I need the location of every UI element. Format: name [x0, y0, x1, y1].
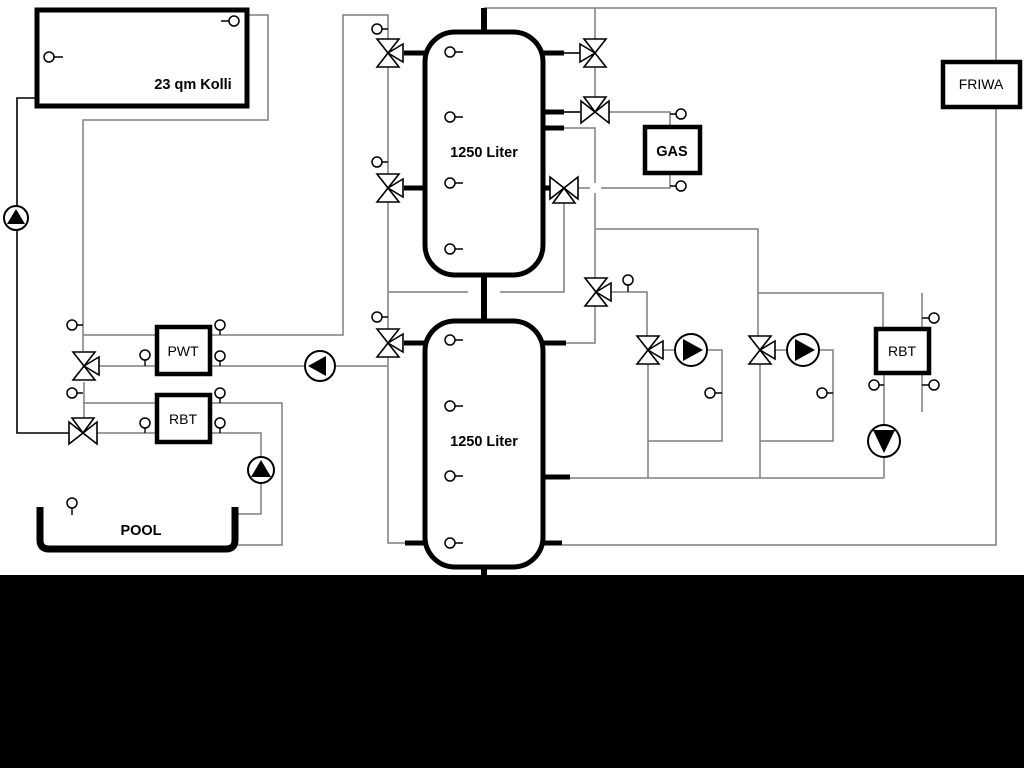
pump-icon-pool: [248, 457, 274, 483]
temperature-sensor-icon: [215, 351, 225, 361]
temperature-sensor-icon: [676, 181, 686, 191]
temperature-sensor-icon: [67, 388, 77, 398]
temperature-sensor-icon: [445, 401, 455, 411]
temperature-sensor-icon: [445, 335, 455, 345]
schematic-page: 23 qm Kolli 1250 Liter 1250 Liter GAS FR…: [0, 0, 1024, 768]
rbt-solar-label: RBT: [169, 411, 197, 427]
temperature-sensor-icon: [229, 16, 239, 26]
temperature-sensor-icon: [445, 47, 455, 57]
pump-icon-solar: [4, 206, 28, 230]
pump-icon-pwt: [305, 351, 335, 381]
solar-collector-label: 23 qm Kolli: [154, 77, 231, 93]
bottom-black-band: [0, 575, 1024, 768]
pool-label: POOL: [120, 523, 161, 539]
tank-top-label: 1250 Liter: [450, 145, 518, 161]
temperature-sensor-icon: [372, 312, 382, 322]
temperature-sensor-icon: [445, 112, 455, 122]
temperature-sensor-icon: [215, 388, 225, 398]
temperature-sensor-icon: [67, 498, 77, 508]
pump-icon-circuit1: [675, 334, 707, 366]
temperature-sensor-icon: [44, 52, 54, 62]
temperature-sensor-icon: [67, 320, 77, 330]
temperature-sensor-icon: [676, 109, 686, 119]
temperature-sensor-icon: [817, 388, 827, 398]
temperature-sensor-icon: [929, 313, 939, 323]
temperature-sensor-icon: [215, 418, 225, 428]
diagram-canvas: 23 qm Kolli 1250 Liter 1250 Liter GAS FR…: [0, 0, 1024, 768]
temperature-sensor-icon: [705, 388, 715, 398]
gas-boiler-label: GAS: [656, 144, 688, 160]
temperature-sensor-icon: [372, 24, 382, 34]
temperature-sensor-icon: [372, 157, 382, 167]
temperature-sensor-icon: [140, 418, 150, 428]
pwt-label: PWT: [167, 343, 199, 359]
rbt-right-label: RBT: [888, 343, 916, 359]
temperature-sensor-icon: [140, 350, 150, 360]
pump-icon-circuit2: [787, 334, 819, 366]
temperature-sensor-icon: [929, 380, 939, 390]
temperature-sensor-icon: [445, 471, 455, 481]
friwa-label: FRIWA: [959, 76, 1004, 92]
temperature-sensor-icon: [215, 320, 225, 330]
temperature-sensor-icon: [869, 380, 879, 390]
pump-icon-rbt-right: [868, 425, 900, 457]
temperature-sensor-icon: [623, 275, 633, 285]
temperature-sensor-icon: [445, 178, 455, 188]
tank-bottom-label: 1250 Liter: [450, 434, 518, 450]
temperature-sensor-icon: [445, 244, 455, 254]
temperature-sensor-icon: [445, 538, 455, 548]
